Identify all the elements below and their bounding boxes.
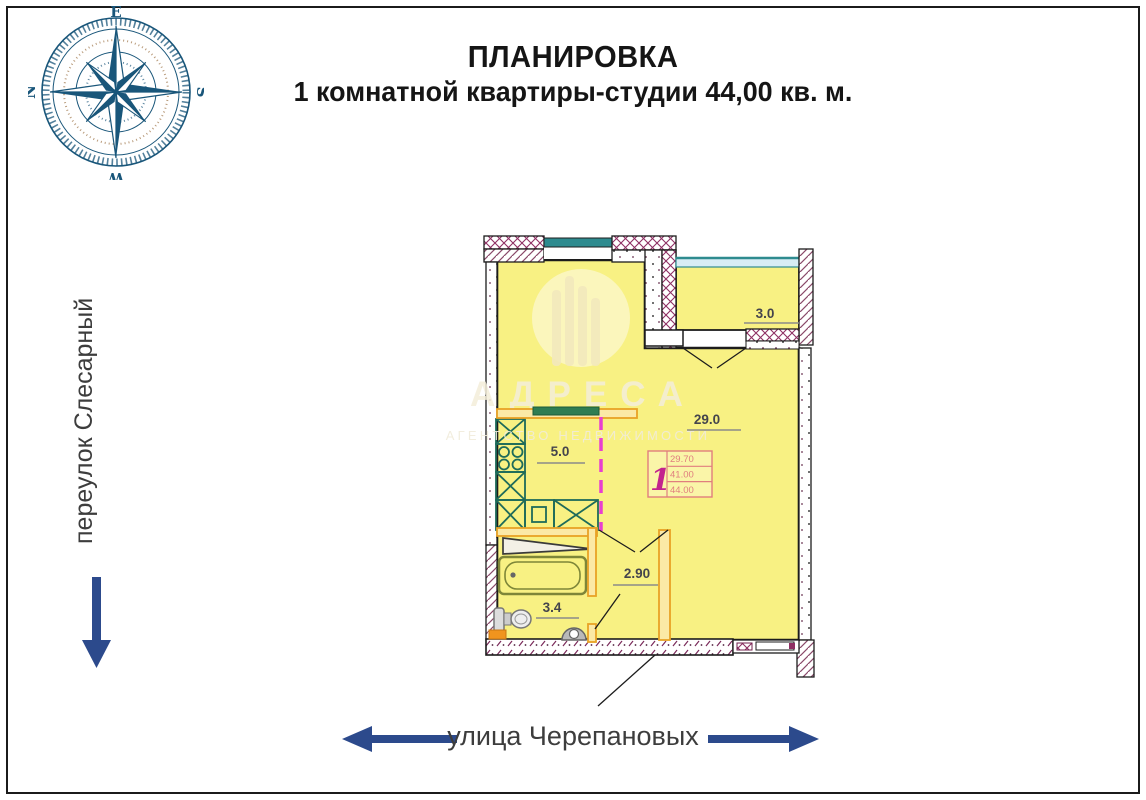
floor-plan: АДРЕСА АГЕНТСТВО НЕДВИЖИМОСТИ 3.0 29.0 bbox=[0, 0, 1146, 800]
stamp-living-area: 29.70 bbox=[670, 454, 694, 465]
watermark-tagline: АГЕНТСТВО НЕДВИЖИМОСТИ bbox=[446, 428, 710, 443]
apartment-stamp: 1 29.70 41.00 44.00 bbox=[648, 451, 712, 498]
label-kitchen-area: 5.0 bbox=[551, 444, 570, 459]
label-bathroom-area: 3.4 bbox=[543, 600, 562, 615]
label-hall-area: 2.90 bbox=[624, 566, 650, 581]
balcony-interior bbox=[676, 262, 799, 330]
hall-wall bbox=[659, 530, 670, 640]
label-balcony-area: 3.0 bbox=[756, 306, 775, 321]
threshold-orange bbox=[489, 630, 506, 639]
stamp-apartment-number: 1 bbox=[650, 463, 671, 498]
counter-green-segment bbox=[533, 407, 599, 415]
stamp-apartment-area: 41.00 bbox=[670, 470, 694, 481]
floorplan-page: E S W N ПЛАНИРОВКА 1 комнатной квартиры-… bbox=[0, 0, 1146, 800]
stamp-total-area: 44.00 bbox=[670, 485, 694, 496]
label-living-area: 29.0 bbox=[694, 412, 720, 427]
street-label-bottom: улица Черепановых bbox=[0, 721, 1146, 752]
entrance-door bbox=[733, 640, 799, 653]
balcony-glazing bbox=[676, 258, 799, 267]
window-top bbox=[544, 238, 612, 247]
arrow-down-icon bbox=[82, 577, 111, 668]
